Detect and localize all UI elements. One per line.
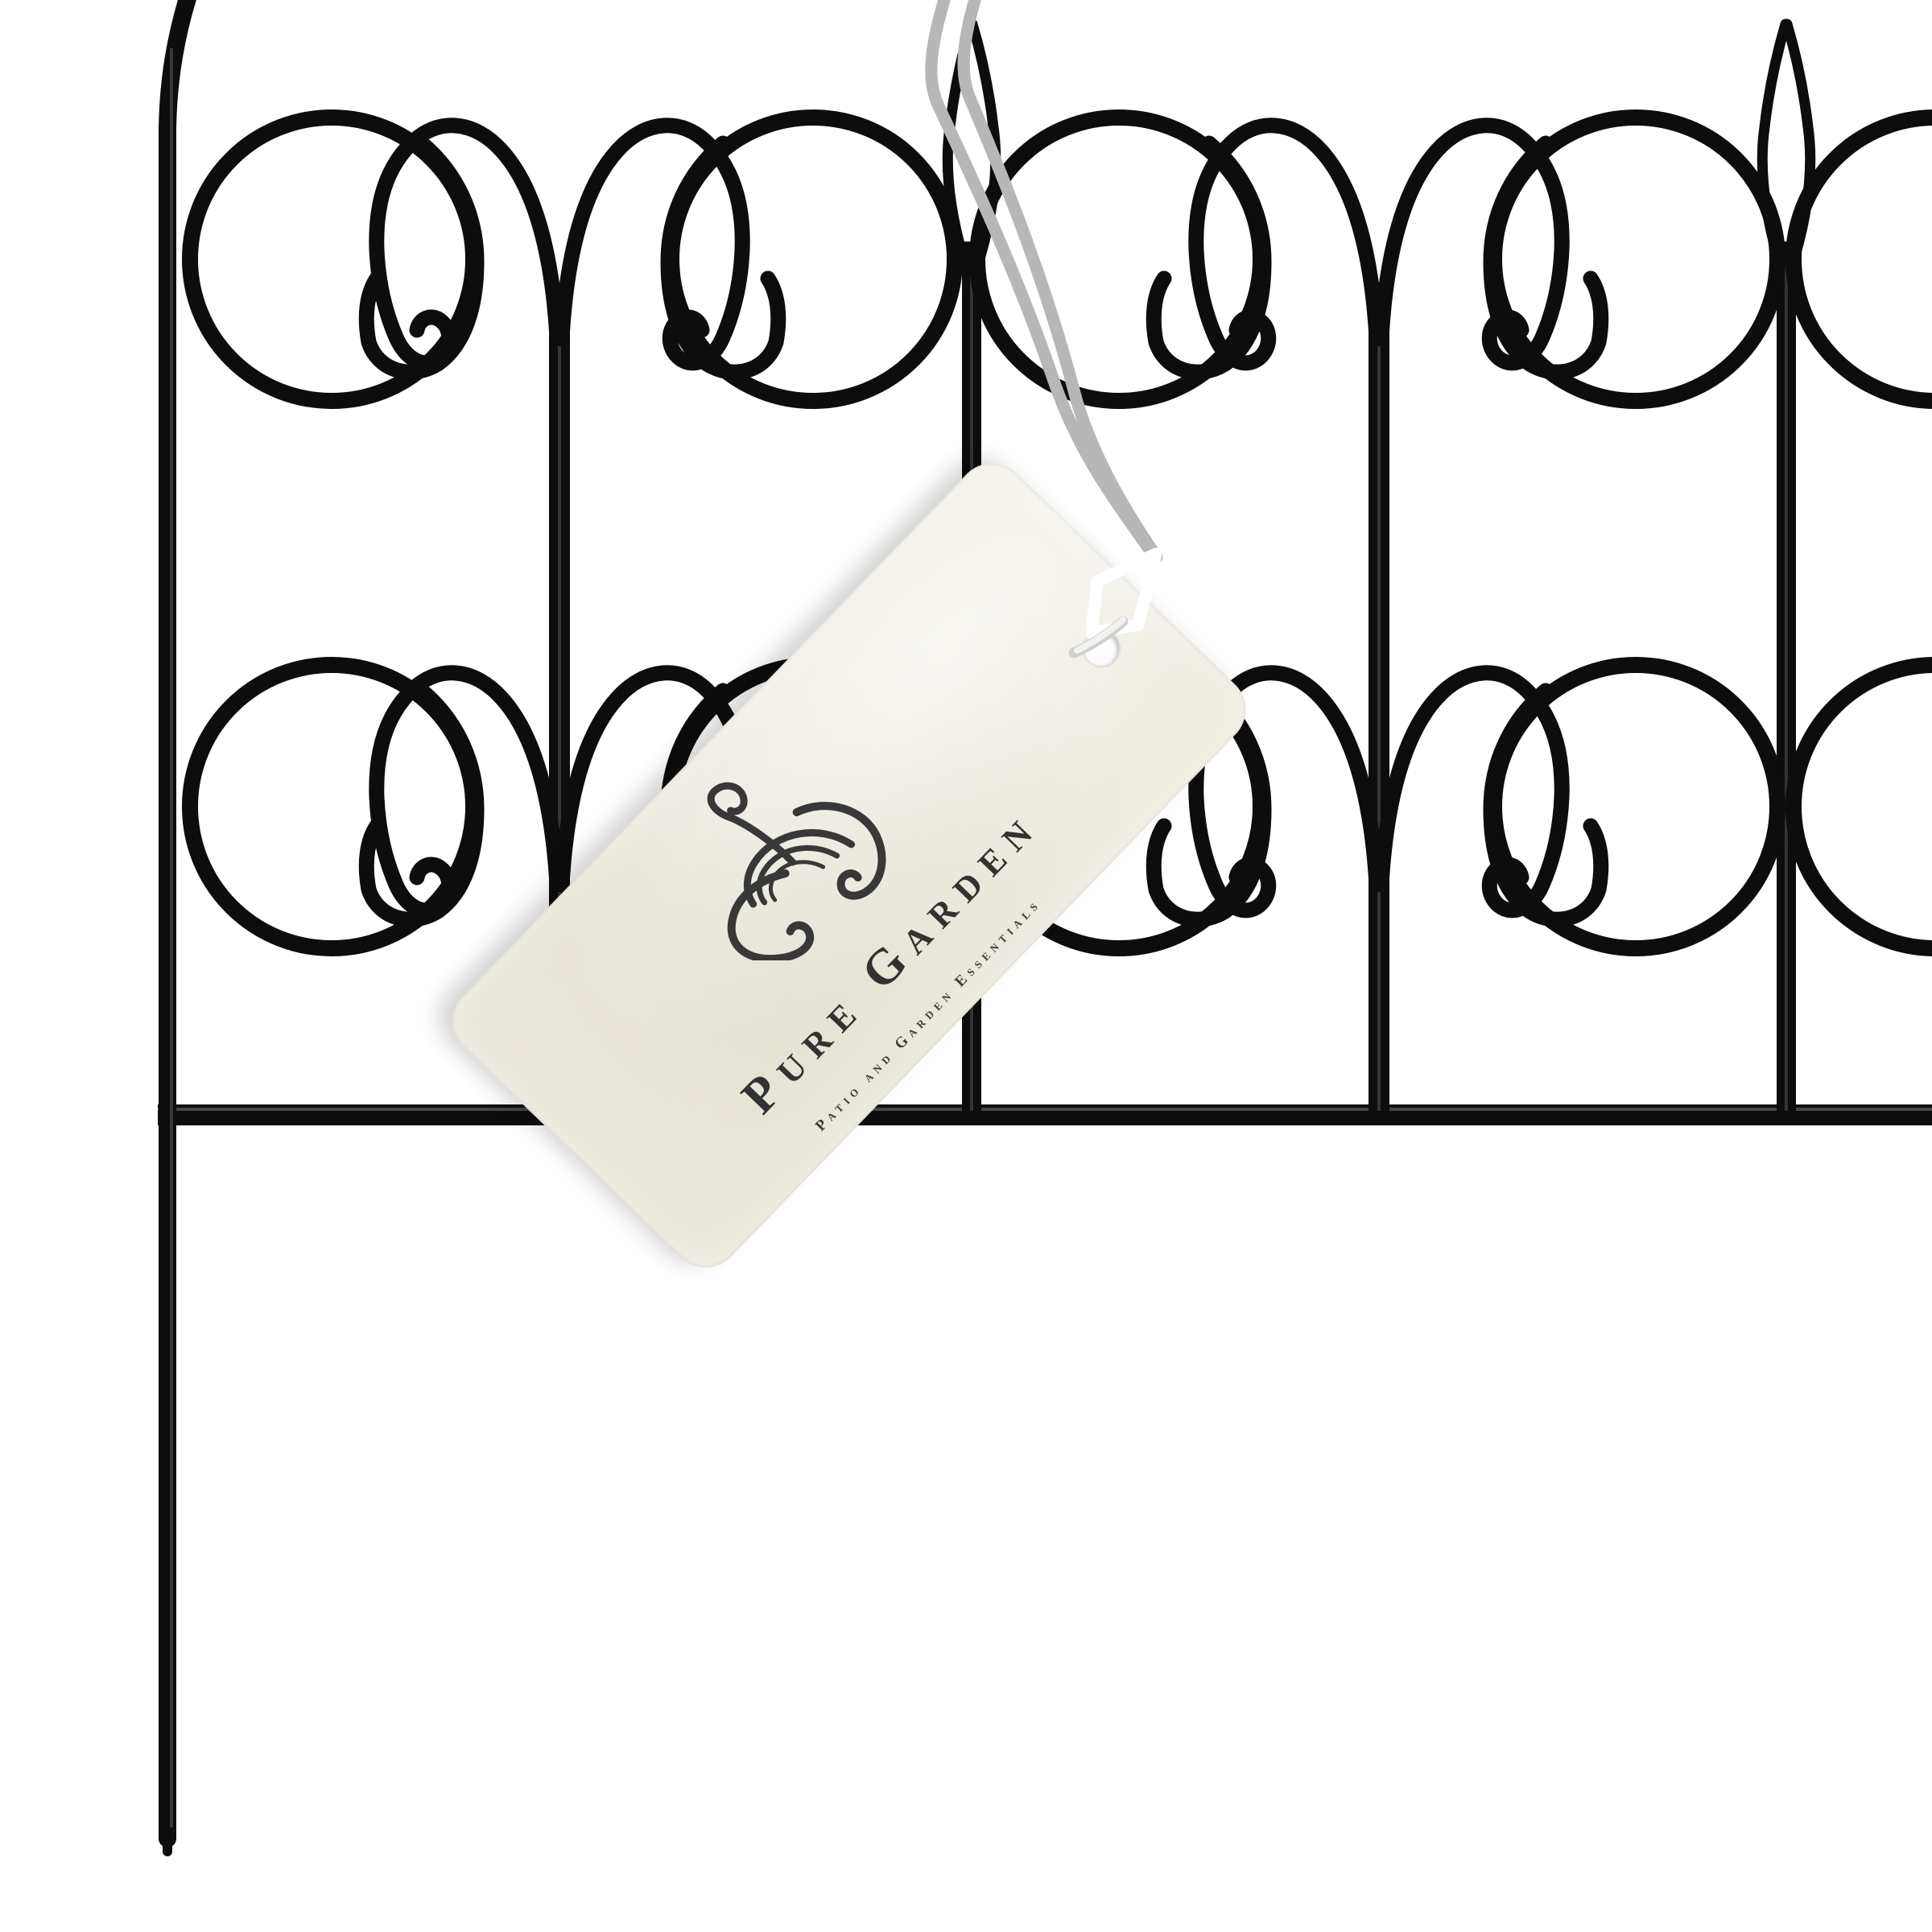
swirl-topiary-flourish-icon <box>699 767 892 960</box>
fence-scrollwork-top-row <box>190 118 1932 401</box>
fence-bottom-rail <box>158 1109 1932 1115</box>
fence-post-right <box>1762 24 1810 1115</box>
product-photo: Pure Garden Patio and Garden Essentials <box>0 0 1932 1932</box>
